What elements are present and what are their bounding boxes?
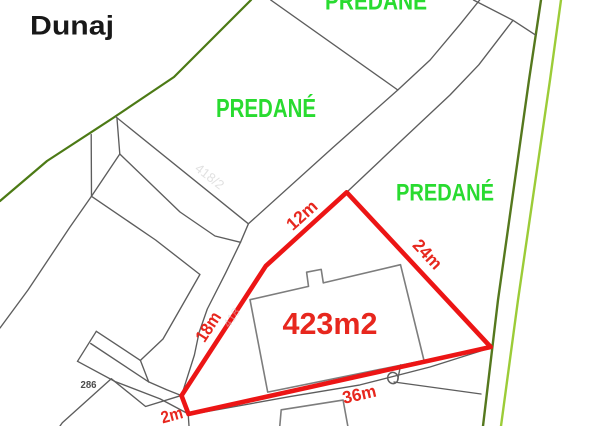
svg-text:286: 286: [81, 380, 97, 391]
svg-text:Dunaj: Dunaj: [30, 11, 114, 41]
svg-text:423m2: 423m2: [283, 307, 378, 341]
svg-text:PREDANÉ: PREDANÉ: [325, 0, 427, 16]
svg-text:PREDANÉ: PREDANÉ: [396, 179, 494, 207]
svg-text:PREDANÉ: PREDANÉ: [216, 93, 316, 123]
